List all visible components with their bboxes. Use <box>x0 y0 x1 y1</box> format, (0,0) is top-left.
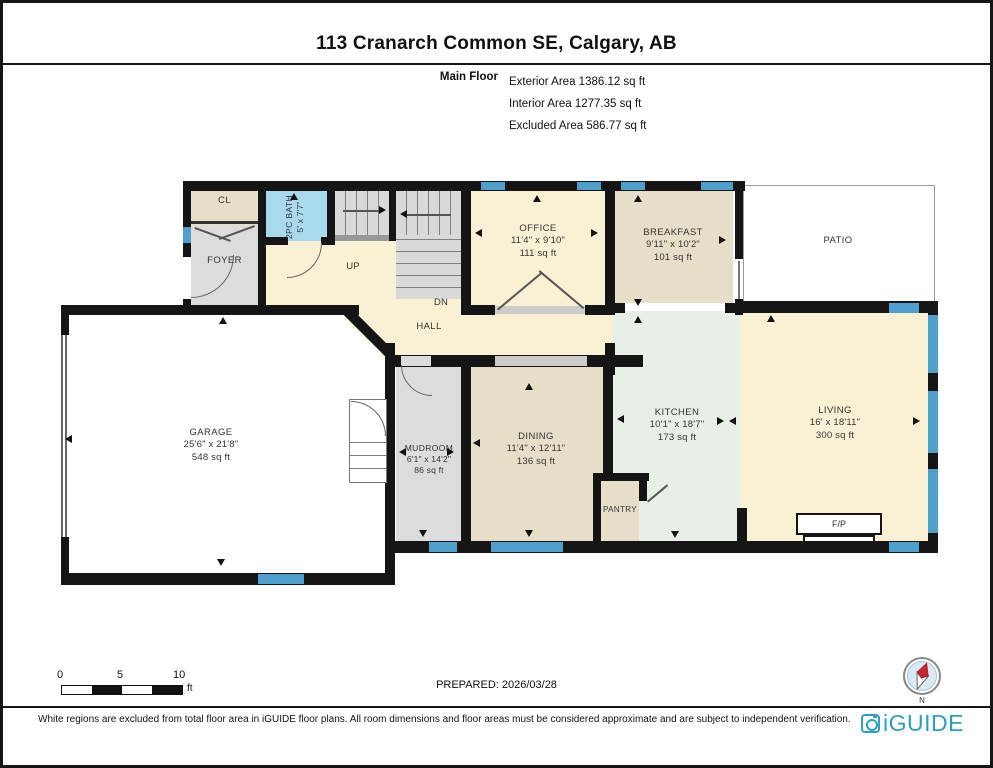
wall-segment <box>461 181 471 315</box>
window-segment <box>481 182 505 190</box>
arrow-left-icon <box>65 435 72 443</box>
arrow-down-icon <box>671 531 679 538</box>
window-segment <box>183 227 191 243</box>
wall-segment <box>735 181 743 261</box>
window-segment <box>928 315 938 373</box>
wall-segment <box>258 181 266 313</box>
wall-segment <box>461 305 495 315</box>
window-segment <box>928 469 938 533</box>
compass-icon: N <box>901 655 943 710</box>
label-bath: 2PC BATH 5' x 7'7" <box>284 181 308 253</box>
floor-plan-page: 113 Cranarch Common SE, Calgary, AB Main… <box>0 0 993 768</box>
excluded-area: Excluded Area 586.77 sq ft <box>509 115 646 137</box>
label-pantry: PANTRY <box>595 505 645 515</box>
arrow-left-icon <box>400 210 407 218</box>
stair-guide-line <box>343 210 381 212</box>
fireplace-box: F/P <box>796 513 882 535</box>
arrow-right-icon <box>913 417 920 425</box>
area-stats: Exterior Area 1386.12 sq ft Interior Are… <box>509 71 646 137</box>
wall-segment <box>639 473 647 501</box>
compass-north-label: N <box>919 696 925 705</box>
wall-segment <box>737 508 747 543</box>
interior-area: Interior Area 1277.35 sq ft <box>509 93 646 115</box>
arrow-left-icon <box>729 417 736 425</box>
wall-segment <box>61 573 395 585</box>
wall-segment <box>603 367 613 475</box>
window-segment <box>889 303 919 313</box>
arrow-left-icon <box>399 448 406 456</box>
page-title: 113 Cranarch Common SE, Calgary, AB <box>3 33 990 55</box>
arrow-up-icon <box>290 193 298 200</box>
arrow-right-icon <box>719 236 726 244</box>
wall-segment <box>61 305 359 315</box>
arrow-right-icon <box>717 417 724 425</box>
iguide-logo: iGUIDE <box>861 710 964 737</box>
wall-segment <box>605 355 643 367</box>
label-up: UP <box>339 261 367 273</box>
patio-door-line <box>738 261 740 301</box>
label-kitchen: KITCHEN 10'1" x 18'7" 173 sq ft <box>625 407 729 444</box>
label-office: OFFICE 11'4" x 9'10" 111 sq ft <box>481 223 595 260</box>
window-segment <box>701 182 733 190</box>
disclaimer-text: White regions are excluded from total fl… <box>38 714 860 725</box>
arrow-left-icon <box>617 415 624 423</box>
stair-guide-line <box>407 214 451 216</box>
arrow-left-icon <box>475 229 482 237</box>
window-segment <box>889 542 919 552</box>
label-closet: CL <box>191 195 258 207</box>
wall-segment <box>327 181 335 245</box>
window-segment <box>621 182 645 190</box>
label-living: LIVING 16' x 18'11" 300 sq ft <box>785 405 885 442</box>
door-sill <box>495 306 585 314</box>
wall-segment <box>611 303 625 313</box>
wall-segment <box>183 243 191 257</box>
label-hall: HALL <box>405 321 453 333</box>
window-segment <box>928 391 938 453</box>
label-foyer: FOYER <box>191 255 258 267</box>
arrow-right-icon <box>591 229 598 237</box>
fireplace-label: F/P <box>832 519 846 529</box>
iguide-logo-text: iGUIDE <box>883 710 964 737</box>
floor-label: Main Floor <box>343 71 498 83</box>
arrow-right-icon <box>447 448 454 456</box>
wall-segment <box>389 181 396 241</box>
label-garage: GARAGE 25'6" x 21'8" 548 sq ft <box>151 427 271 464</box>
window-segment <box>258 574 304 584</box>
arrow-up-icon <box>219 317 227 324</box>
arrow-left-icon <box>473 439 480 447</box>
arrow-down-icon <box>419 530 427 537</box>
arrow-down-icon <box>634 299 642 306</box>
label-patio: PATIO <box>801 235 875 247</box>
window-segment <box>429 542 457 552</box>
stairs-down-lower <box>396 235 461 299</box>
arrow-up-icon <box>767 315 775 322</box>
stair-landing-edge <box>335 235 391 241</box>
wall-segment <box>61 305 69 335</box>
prepared-date: PREPARED: 2026/03/28 <box>3 679 990 691</box>
wall-segment <box>191 221 258 224</box>
label-dining: DINING 11'4" x 12'11" 136 sq ft <box>479 431 593 468</box>
window-segment <box>577 182 601 190</box>
door-sill <box>495 356 587 366</box>
arrow-down-icon <box>525 530 533 537</box>
window-segment <box>491 542 563 552</box>
arrow-up-icon <box>533 195 541 202</box>
garage-steps <box>350 433 386 481</box>
arrow-up-icon <box>525 383 533 390</box>
exterior-area: Exterior Area 1386.12 sq ft <box>509 71 646 93</box>
wall-segment <box>183 181 191 227</box>
title-divider <box>3 63 990 65</box>
label-breakfast: BREAKFAST 9'11" x 10'2" 101 sq ft <box>611 227 735 264</box>
arrow-right-icon <box>379 206 386 214</box>
footer-divider <box>3 706 990 708</box>
fireplace-hearth <box>803 535 875 543</box>
arrow-down-icon <box>217 559 225 566</box>
label-dn: DN <box>427 297 455 309</box>
iguide-camera-icon <box>861 714 880 733</box>
arrow-up-icon <box>634 316 642 323</box>
arrow-up-icon <box>634 195 642 202</box>
